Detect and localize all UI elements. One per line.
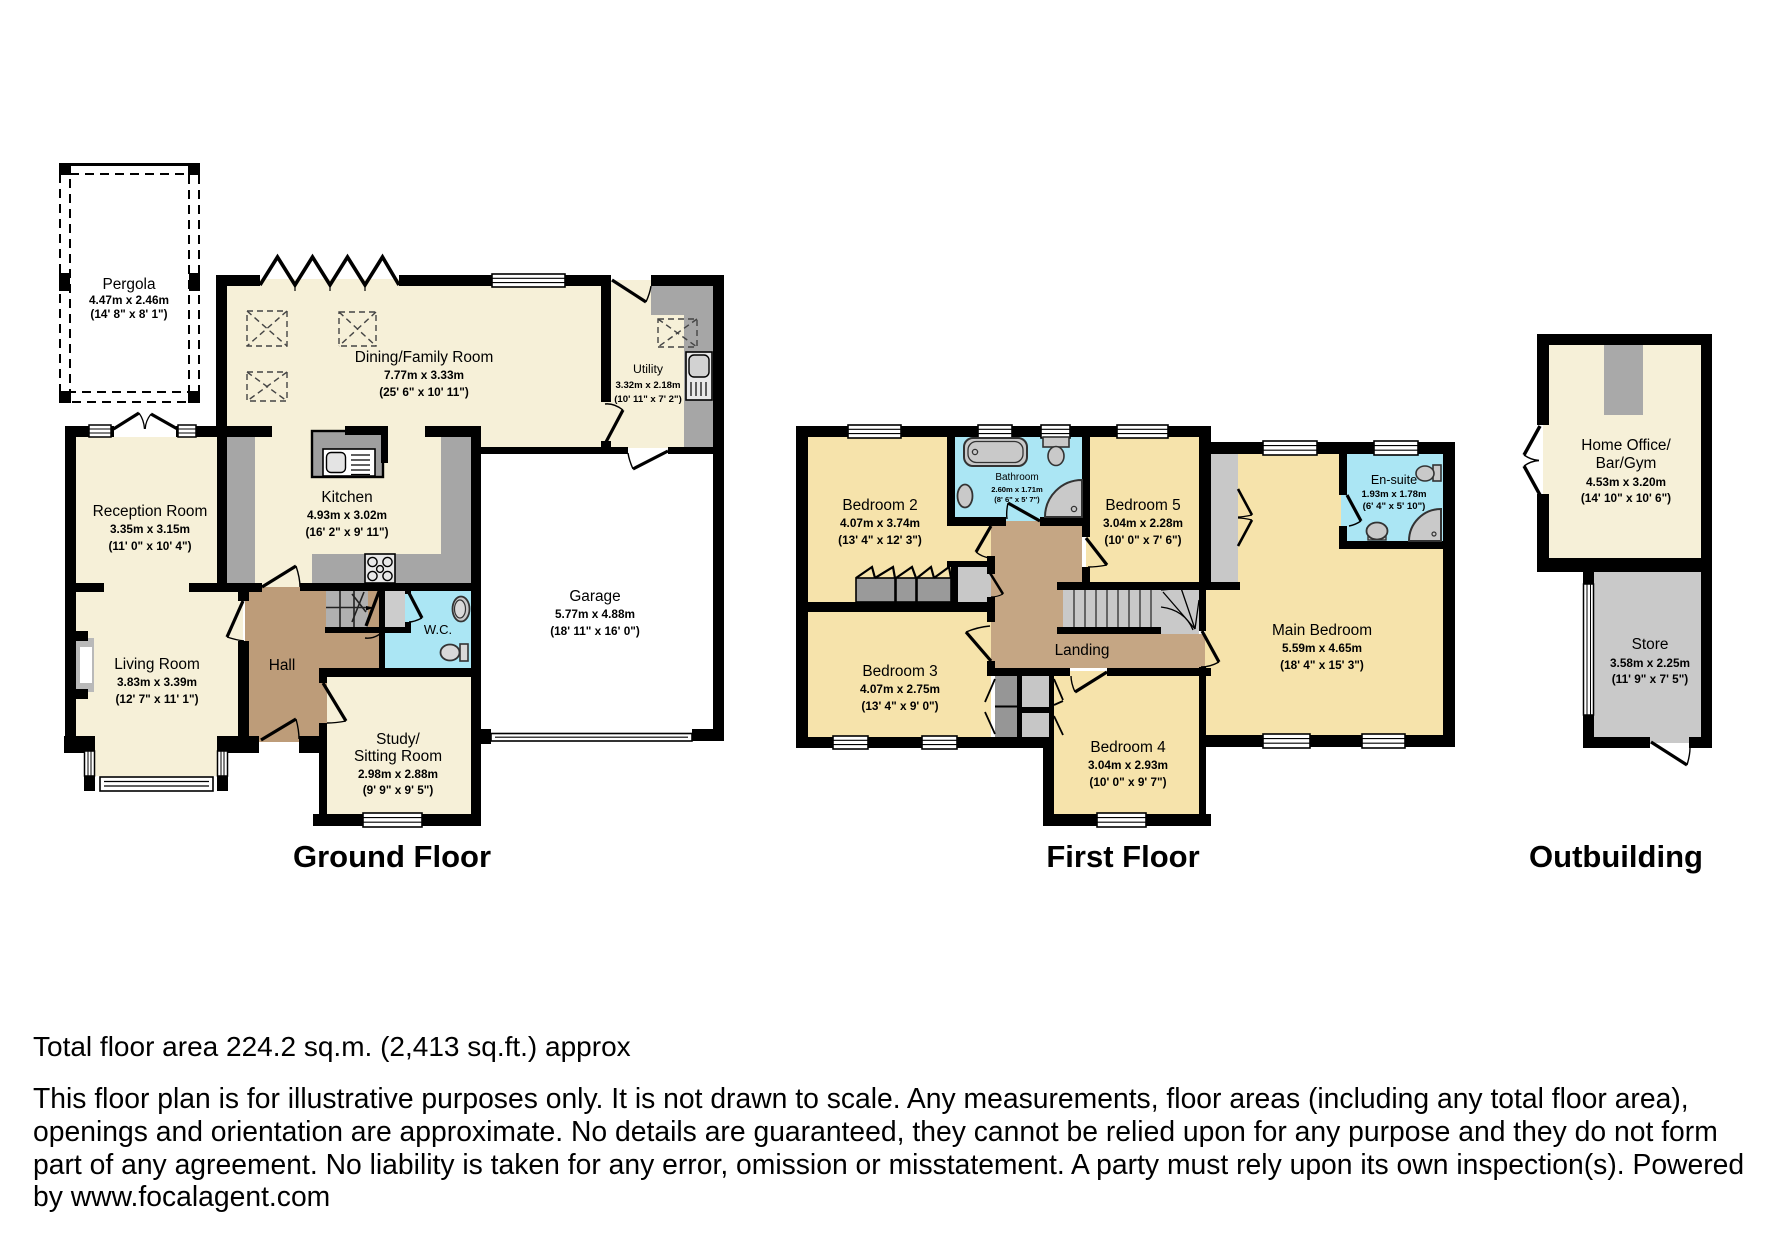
svg-text:Bar/Gym: Bar/Gym <box>1596 455 1657 472</box>
svg-text:Dining/Family Room: Dining/Family Room <box>355 349 494 366</box>
svg-text:4.07m x 3.74m: 4.07m x 3.74m <box>840 516 920 530</box>
svg-text:(9' 9" x 9' 5"): (9' 9" x 9' 5") <box>363 783 434 797</box>
svg-text:Outbuilding: Outbuilding <box>1529 839 1703 874</box>
svg-text:3.35m x 3.15m: 3.35m x 3.15m <box>110 522 190 536</box>
svg-text:Ground Floor: Ground Floor <box>293 839 491 874</box>
svg-text:First Floor: First Floor <box>1046 839 1199 874</box>
svg-text:4.07m x 2.75m: 4.07m x 2.75m <box>860 682 940 696</box>
svg-text:Living Room: Living Room <box>114 656 200 673</box>
svg-text:(13' 4" x 12' 3"): (13' 4" x 12' 3") <box>838 533 922 547</box>
svg-text:(11' 9" x 7' 5"): (11' 9" x 7' 5") <box>1612 672 1689 686</box>
svg-text:7.77m x 3.33m: 7.77m x 3.33m <box>384 368 464 382</box>
svg-text:4.93m x 3.02m: 4.93m x 3.02m <box>307 508 387 522</box>
svg-text:Garage: Garage <box>569 588 620 605</box>
svg-text:W.C.: W.C. <box>424 622 452 637</box>
svg-text:Pergola: Pergola <box>102 276 155 293</box>
svg-text:5.59m x 4.65m: 5.59m x 4.65m <box>1282 641 1362 655</box>
svg-text:3.83m x 3.39m: 3.83m x 3.39m <box>117 675 197 689</box>
svg-text:3.32m x 2.18m: 3.32m x 2.18m <box>615 380 680 391</box>
svg-text:Store: Store <box>1632 636 1669 653</box>
svg-text:3.04m x 2.93m: 3.04m x 2.93m <box>1088 758 1168 772</box>
svg-text:openings and orientation are a: openings and orientation are approximate… <box>33 1115 1718 1147</box>
svg-text:Utility: Utility <box>633 362 664 376</box>
svg-text:(11' 0" x 10' 4"): (11' 0" x 10' 4") <box>108 539 191 553</box>
svg-text:(16' 2" x 9' 11"): (16' 2" x 9' 11") <box>305 525 388 539</box>
svg-text:by www.focalagent.com: by www.focalagent.com <box>33 1180 330 1212</box>
svg-text:(14' 8" x 8' 1"): (14' 8" x 8' 1") <box>90 307 167 321</box>
svg-text:(10' 0" x 9' 7"): (10' 0" x 9' 7") <box>1089 775 1166 789</box>
svg-text:Kitchen: Kitchen <box>321 489 372 506</box>
svg-text:2.98m x 2.88m: 2.98m x 2.88m <box>358 767 438 781</box>
svg-text:Main Bedroom: Main Bedroom <box>1272 622 1372 639</box>
svg-text:(18' 4" x 15' 3"): (18' 4" x 15' 3") <box>1280 658 1364 672</box>
svg-text:Bathroom: Bathroom <box>995 472 1038 483</box>
svg-text:Total floor area 224.2 sq.m. (: Total floor area 224.2 sq.m. (2,413 sq.f… <box>33 1031 631 1062</box>
svg-text:(12' 7" x 11' 1"): (12' 7" x 11' 1") <box>115 692 198 706</box>
svg-text:3.58m x 2.25m: 3.58m x 2.25m <box>1610 656 1690 670</box>
svg-text:Bedroom 5: Bedroom 5 <box>1105 497 1180 514</box>
svg-text:2.60m x 1.71m: 2.60m x 1.71m <box>991 485 1043 494</box>
svg-text:(14' 10" x 10' 6"): (14' 10" x 10' 6") <box>1581 491 1671 505</box>
svg-text:(25' 6" x 10' 11"): (25' 6" x 10' 11") <box>379 385 469 399</box>
svg-text:5.77m x 4.88m: 5.77m x 4.88m <box>555 607 635 621</box>
svg-text:Bedroom 2: Bedroom 2 <box>842 497 917 514</box>
svg-text:(10' 11" x 7' 2"): (10' 11" x 7' 2") <box>614 394 682 405</box>
svg-text:(8' 6" x 5' 7"): (8' 6" x 5' 7") <box>994 495 1040 504</box>
svg-text:Home Office/: Home Office/ <box>1581 437 1671 454</box>
svg-text:Reception Room: Reception Room <box>93 503 208 520</box>
svg-text:Hall: Hall <box>269 657 296 674</box>
svg-text:Bedroom 3: Bedroom 3 <box>862 663 937 680</box>
svg-text:part of any agreement. No liab: part of any agreement. No liability is t… <box>33 1148 1744 1180</box>
svg-text:This floor plan is for illustr: This floor plan is for illustrative purp… <box>33 1082 1689 1114</box>
svg-text:Landing: Landing <box>1055 642 1110 659</box>
svg-text:(10' 0" x 7' 6"): (10' 0" x 7' 6") <box>1104 533 1181 547</box>
svg-text:En-suite: En-suite <box>1371 473 1417 487</box>
svg-text:(6' 4" x 5' 10"): (6' 4" x 5' 10") <box>1363 501 1426 512</box>
svg-text:(18' 11" x 16' 0"): (18' 11" x 16' 0") <box>550 624 640 638</box>
svg-text:(13' 4" x 9' 0"): (13' 4" x 9' 0") <box>861 699 938 713</box>
svg-text:Bedroom 4: Bedroom 4 <box>1090 739 1166 756</box>
svg-text:4.47m x 2.46m: 4.47m x 2.46m <box>89 293 169 307</box>
svg-text:1.93m x 1.78m: 1.93m x 1.78m <box>1361 489 1426 500</box>
svg-text:Sitting Room: Sitting Room <box>354 748 442 765</box>
svg-text:4.53m x 3.20m: 4.53m x 3.20m <box>1586 475 1666 489</box>
svg-text:Study/: Study/ <box>376 731 420 748</box>
svg-text:3.04m x 2.28m: 3.04m x 2.28m <box>1103 516 1183 530</box>
